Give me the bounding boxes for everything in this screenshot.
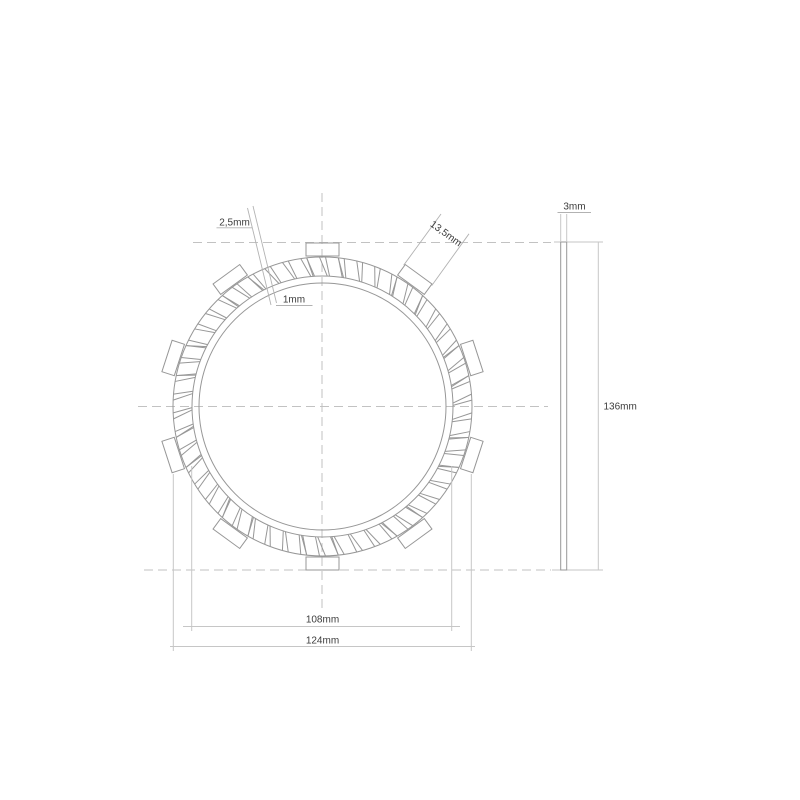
pad-groove-edge <box>437 468 456 472</box>
tab-base-pad-edge <box>338 258 342 278</box>
tab-base-pad-edge <box>222 499 230 517</box>
label-outer-diameter-over-tabs: 124mm <box>306 636 339 647</box>
pad-groove-edge <box>173 394 193 401</box>
tab-base-pad-edge <box>176 428 194 438</box>
pad-groove-edge <box>445 450 466 452</box>
pad-groove-edge <box>452 419 471 422</box>
label-plate-thickness: 3mm <box>563 202 585 213</box>
pad-groove-edge <box>173 408 192 413</box>
tab-base-pad-edge <box>414 296 422 314</box>
label-overall-height: 136mm <box>604 402 637 413</box>
pad-groove-edge <box>344 259 346 279</box>
tab-base-pad-edge <box>451 376 469 386</box>
pad-groove-edge <box>420 493 440 499</box>
pad-groove-edge <box>181 357 200 359</box>
pad-groove-edge <box>175 377 195 381</box>
pad-groove-edge <box>282 531 283 551</box>
drive-tab-outline <box>398 519 432 549</box>
tab-base-pad-edge <box>330 537 338 555</box>
pad-groove-edge <box>452 413 472 420</box>
tab-base-pad-edge <box>248 277 263 291</box>
product-drawing-page: 2,5mm 1mm 13,5mm 3mm 136mm 108mm 124mm <box>0 0 800 800</box>
label-groove-width-outer: 2,5mm <box>219 218 250 229</box>
tab-base-pad-edge <box>382 522 397 536</box>
groove-leader-line <box>253 206 277 303</box>
groove-leader-line <box>248 208 272 305</box>
pad-groove-edge <box>174 391 193 394</box>
pad-groove-edge <box>179 362 200 364</box>
pad-groove-edge <box>453 394 472 403</box>
pad-groove-edge <box>265 525 268 544</box>
tab-base-pad-edge <box>303 535 307 555</box>
drive-tab-outline <box>213 519 247 549</box>
tab-base-pad-edge <box>307 258 315 276</box>
dimension-labels: 2,5mm 1mm 13,5mm 3mm 136mm 108mm 124mm <box>219 202 637 647</box>
pad-groove-edge <box>444 453 463 455</box>
pad-groove-edge <box>285 532 288 552</box>
clutch-plate-technical-drawing: 2,5mm 1mm 13,5mm 3mm 136mm 108mm 124mm <box>0 0 800 800</box>
pad-groove-edge <box>189 340 208 344</box>
label-tab-width: 13,5mm <box>428 219 464 249</box>
dimension-lines-layer <box>170 206 603 651</box>
pad-groove-edge <box>418 495 435 504</box>
pad-groove-edge <box>301 259 311 277</box>
tab-base-pad-edge <box>248 517 252 537</box>
drive-tab-outline <box>398 265 432 295</box>
pad-groove-edge <box>174 410 193 419</box>
pad-groove-edge <box>299 535 301 555</box>
pad-groove-edge <box>357 261 360 281</box>
tab-base-pad-edge <box>222 296 239 306</box>
label-groove-width-inner: 1mm <box>283 295 305 306</box>
centerlines-layer <box>138 193 551 611</box>
pad-groove-edge <box>377 269 380 288</box>
pad-groove-edge <box>362 262 363 282</box>
pad-groove-edge <box>205 314 225 320</box>
label-friction-outer-diameter: 108mm <box>306 615 339 626</box>
tab-base-pad-edge <box>393 277 397 297</box>
pad-groove-edge <box>390 274 392 294</box>
pad-groove-edge <box>453 400 472 405</box>
pad-groove-edge <box>334 536 344 554</box>
pad-groove-edge <box>450 432 470 436</box>
pad-groove-edge <box>209 309 226 318</box>
tab-base-pad-edge <box>406 507 423 517</box>
drive-tab-outline <box>213 265 247 295</box>
pad-groove-edge <box>253 518 255 538</box>
side-view-plate <box>561 242 567 570</box>
